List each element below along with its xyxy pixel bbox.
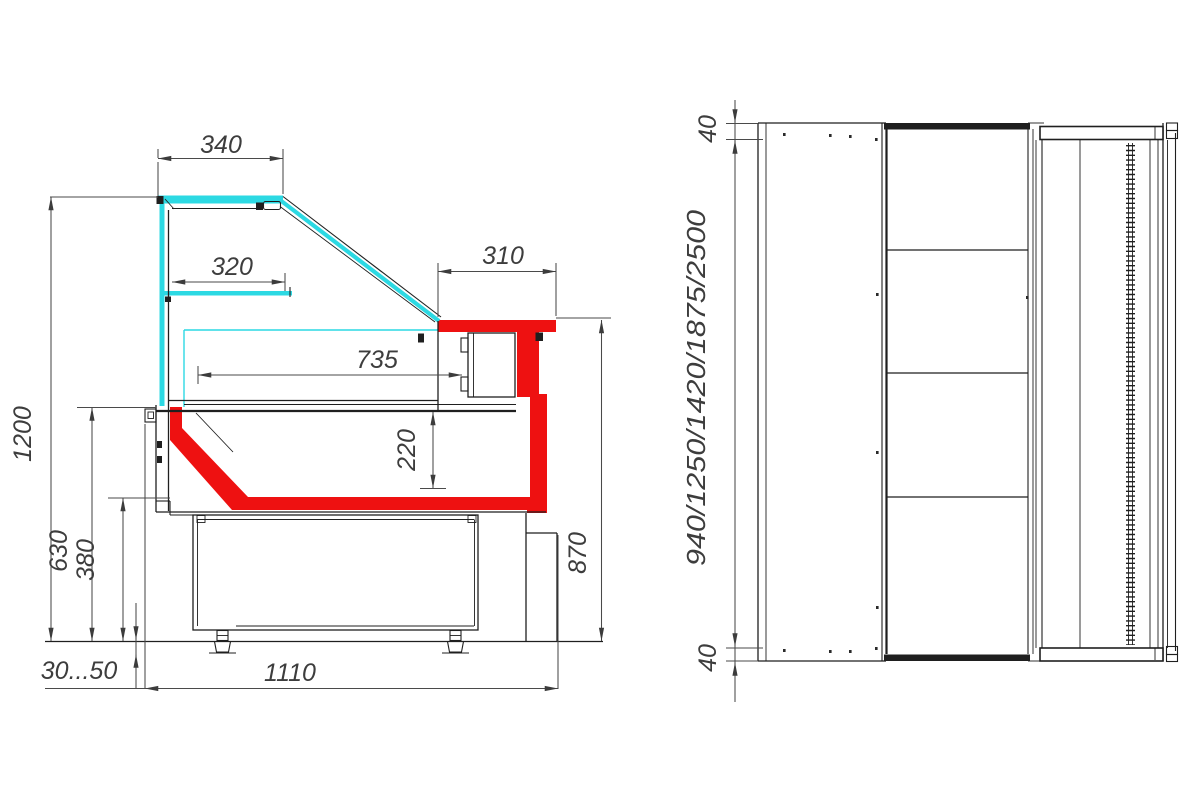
dim-label: 220: [393, 429, 421, 472]
side-view: 340 320 310 735 220: [9, 131, 611, 689]
dim-end-margin-bottom: 40: [694, 634, 735, 675]
dim-shelf-depth: 320: [172, 253, 285, 291]
wall-clip: [157, 456, 162, 463]
base-cabinet: [193, 515, 478, 630]
dim-label: 320: [211, 253, 253, 281]
top-view-structure: [758, 123, 1178, 662]
dim-label: 40: [694, 115, 722, 143]
technical-drawing: 340 320 310 735 220: [0, 0, 1200, 800]
dim-rear-top-depth: 310: [438, 242, 556, 317]
glass-edge-bottom: [884, 655, 1030, 662]
dim-label: 40: [694, 644, 722, 672]
shelf-divisions: [887, 250, 1028, 497]
dim-label: 380: [72, 539, 100, 581]
slope-glass: [282, 202, 439, 322]
dim-front-height: 630: [45, 408, 156, 642]
lamp-bracket: [256, 203, 263, 211]
condenser-section: [1036, 140, 1158, 648]
top-dimensions: 40 940/1250/1420/1875/2500 40: [681, 100, 763, 702]
dim-canopy-depth: 340: [158, 131, 283, 196]
shelf-clip: [165, 297, 171, 303]
dim-base-depth: 1110: [45, 424, 558, 689]
drawing-canvas: 340 320 310 735 220: [0, 0, 1200, 800]
dim-length-options: 940/1250/1420/1875/2500: [681, 209, 711, 566]
dim-label: 735: [356, 346, 398, 374]
dim-rear-height: 870: [556, 318, 611, 641]
dim-label: 340: [200, 131, 242, 159]
dim-label: 1110: [264, 659, 316, 687]
dim-well-height: 220: [393, 412, 446, 489]
dim-base-height: 380: [72, 498, 170, 641]
dim-label: 870: [564, 532, 592, 574]
screw-marks: [783, 133, 1029, 653]
compressor-box: [468, 333, 515, 397]
dim-label: 30...50: [41, 657, 118, 685]
dim-end-margin-top: 40: [694, 110, 735, 153]
end-rail-top: [1040, 127, 1163, 140]
wall-bracket: [145, 409, 156, 422]
shelf-glass: [160, 291, 292, 296]
glass-edge-top: [884, 123, 1030, 130]
front-glass: [160, 203, 165, 406]
end-rail-bottom: [1040, 648, 1163, 661]
dim-label: 1200: [9, 406, 37, 462]
wall-clip: [157, 441, 162, 448]
dim-label: 940/1250/1420/1875/2500: [681, 209, 711, 566]
dim-label: 310: [482, 242, 524, 270]
dim-feet-range: 30...50: [41, 603, 136, 688]
top-view: 40 940/1250/1420/1875/2500 40: [681, 100, 1178, 702]
dim-label: 630: [45, 530, 73, 572]
dim-well-depth: 735: [198, 346, 462, 384]
